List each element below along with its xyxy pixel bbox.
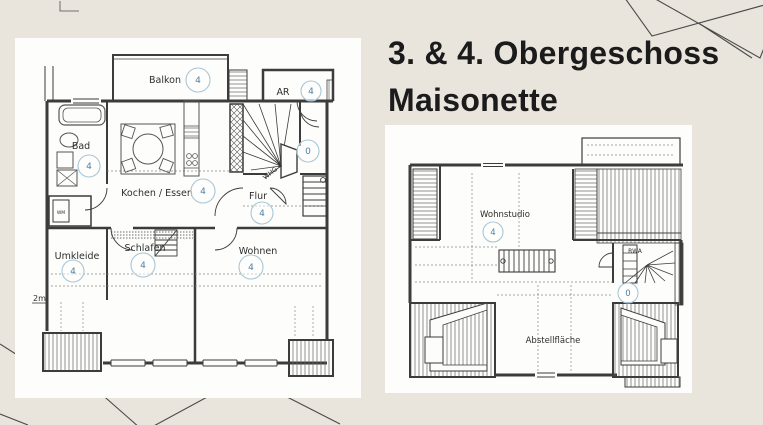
svg-text:0: 0 <box>305 147 311 157</box>
dormer-bottom-left-upper <box>410 303 495 377</box>
roof-terrace-right <box>597 169 681 233</box>
washer-label: WM <box>57 210 65 216</box>
decor-corner-top-left <box>60 1 79 11</box>
unit-badge-kochen: 4 <box>191 179 215 203</box>
unit-badge-upper-stairs: 0 <box>618 283 638 303</box>
room-label-kochen-essen: Kochen / Essen <box>121 188 193 199</box>
lower-floor-plan: Balkon AR Bad Kochen / Essen Flur Umklei… <box>15 38 361 398</box>
room-label-balkon: Balkon <box>149 75 181 86</box>
kitchen-fixtures <box>121 101 199 176</box>
room-label-bad: Bad <box>72 141 90 152</box>
central-stair <box>499 250 555 272</box>
room-label-schlafen: Schlafen <box>125 243 166 254</box>
svg-text:0: 0 <box>625 289 630 299</box>
unit-badge-schlafen: 4 <box>131 253 155 277</box>
svg-text:4: 4 <box>140 261 146 271</box>
upper-floor-plan: Wohnstudio Abstellfläche RWA 4 0 <box>385 125 692 393</box>
title-line-2: Maisonette <box>388 77 719 124</box>
svg-text:4: 4 <box>248 263 254 273</box>
unit-badge-umkleide: 4 <box>62 260 84 282</box>
room-label-abstellflaeche: Abstellfläche <box>526 336 581 346</box>
windows <box>71 97 277 368</box>
height-marker-2m: 2m <box>33 294 46 303</box>
unit-badge-balkon: 4 <box>186 68 210 92</box>
title-line-1: 3. & 4. Obergeschoss <box>388 30 719 77</box>
svg-text:4: 4 <box>259 209 265 219</box>
unit-badge-wohnstudio: 4 <box>483 222 503 242</box>
unit-badge-stairs: 0 <box>297 140 319 162</box>
room-label-wohnstudio: Wohnstudio <box>480 210 530 220</box>
upper-plan-hatched-areas <box>413 138 683 305</box>
winder-stair <box>243 104 297 178</box>
mini-stair <box>303 176 327 216</box>
svg-text:4: 4 <box>86 162 92 172</box>
lower-floor-plan-panel: Balkon AR Bad Kochen / Essen Flur Umklei… <box>15 38 361 398</box>
unit-badge-flur: 4 <box>251 202 273 224</box>
svg-text:4: 4 <box>70 267 76 277</box>
dormer-bottom-right-upper <box>613 303 680 387</box>
svg-text:4: 4 <box>195 76 201 86</box>
upper-floor-plan-panel: Wohnstudio Abstellfläche RWA 4 0 <box>385 125 692 393</box>
roof-box-top <box>582 138 680 165</box>
decor-line-bottom-left-2 <box>0 414 28 425</box>
roof-terrace-fringe <box>597 233 681 243</box>
stair-below-marks <box>111 232 193 238</box>
page-title: 3. & 4. Obergeschoss Maisonette <box>388 30 719 124</box>
dormer-bottom-right <box>289 340 333 376</box>
roof-slope-left <box>413 169 437 239</box>
roof-slope-right-strip <box>575 169 597 240</box>
svg-text:4: 4 <box>200 187 206 197</box>
room-label-wohnen: Wohnen <box>239 246 278 257</box>
page-background: 3. & 4. Obergeschoss Maisonette <box>0 0 763 425</box>
room-label-flur: Flur <box>249 191 267 202</box>
unit-badge-ar: 4 <box>301 81 321 101</box>
vent-label-rwa: RWA <box>628 248 643 255</box>
dormer-bottom-left <box>43 333 101 371</box>
unit-badge-wohnen: 4 <box>239 255 263 279</box>
svg-text:4: 4 <box>308 87 314 97</box>
door-arc <box>599 253 613 267</box>
unit-badge-bad: 4 <box>78 155 100 177</box>
room-label-ar: AR <box>276 87 289 98</box>
svg-text:4: 4 <box>490 228 495 238</box>
